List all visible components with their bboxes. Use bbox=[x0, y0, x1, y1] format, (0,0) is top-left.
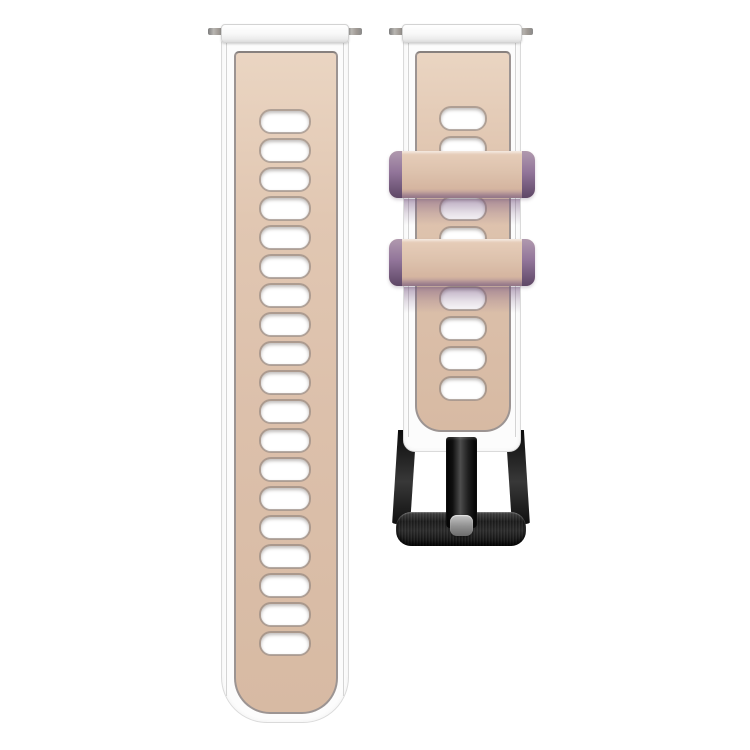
strap-hole bbox=[261, 169, 309, 190]
strap-hole bbox=[261, 343, 309, 364]
strap-hole bbox=[261, 256, 309, 277]
strap-hole bbox=[261, 604, 309, 625]
left-strap-edge-line-left bbox=[226, 41, 227, 696]
strap-hole bbox=[261, 227, 309, 248]
strap-hole bbox=[261, 140, 309, 161]
lug-end-cap-right-strap bbox=[402, 24, 522, 43]
strap-hole bbox=[261, 372, 309, 393]
strap-hole bbox=[261, 111, 309, 132]
keeper-loop-lower bbox=[389, 239, 535, 286]
keeper-loop-upper bbox=[389, 151, 535, 198]
strap-hole bbox=[441, 318, 485, 339]
keeper-shadow-upper bbox=[404, 199, 520, 225]
strap-hole bbox=[261, 314, 309, 335]
strap-hole bbox=[261, 546, 309, 567]
strap-hole bbox=[441, 108, 485, 129]
lug-end-cap-left-strap bbox=[221, 24, 349, 43]
left-strap-beige-panel bbox=[234, 51, 338, 714]
strap-hole bbox=[261, 401, 309, 422]
left-strap-body bbox=[221, 40, 349, 723]
strap-hole bbox=[261, 488, 309, 509]
strap-hole bbox=[261, 430, 309, 451]
keeper-shadow-lower bbox=[404, 287, 520, 313]
strap-hole bbox=[441, 378, 485, 399]
product-photo-canvas bbox=[0, 0, 750, 750]
strap-hole bbox=[261, 517, 309, 538]
strap-hole bbox=[441, 348, 485, 369]
strap-hole bbox=[261, 459, 309, 480]
buckle-prong-tip bbox=[450, 515, 473, 536]
strap-hole bbox=[261, 575, 309, 596]
strap-hole bbox=[261, 198, 309, 219]
left-strap-edge-line-right bbox=[343, 41, 344, 696]
strap-hole bbox=[261, 285, 309, 306]
strap-hole bbox=[261, 633, 309, 654]
